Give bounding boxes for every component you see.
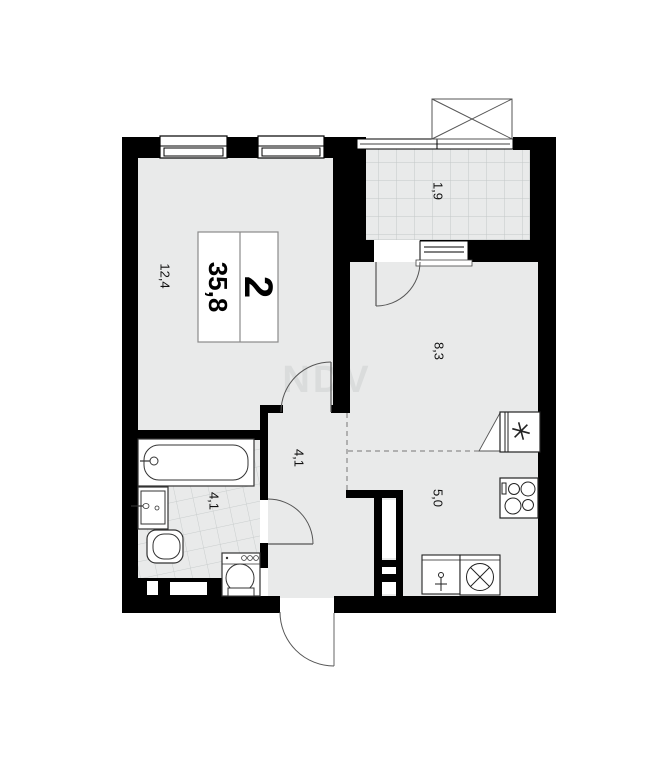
wall-bottom-left xyxy=(122,596,280,613)
balcony-outline-box xyxy=(432,99,512,139)
wall-bath-right-upper xyxy=(260,405,268,500)
summary-rooms-count: 2 xyxy=(236,276,280,298)
wall-bottom-right xyxy=(334,596,556,613)
door-swing-arc xyxy=(280,612,334,666)
shaft-rung-2 xyxy=(374,574,403,582)
shaft-cell-1 xyxy=(382,500,396,558)
shaft-cell-2 xyxy=(382,567,396,574)
wall-hall-top-right xyxy=(331,405,348,413)
balcony-railing xyxy=(357,139,513,149)
wall-right xyxy=(538,240,556,613)
duct-niche-1 xyxy=(147,581,158,595)
washing-machine xyxy=(222,553,260,596)
wall-bath-right-lower xyxy=(260,543,268,568)
room-label-kitchen-living: 8,3 xyxy=(432,342,447,360)
balcony-door-opening xyxy=(374,240,420,262)
watermark-text: NDV xyxy=(282,359,371,401)
summary-total-area: 35,8 xyxy=(203,262,233,313)
room-label-hallway: 4,1 xyxy=(292,449,307,467)
floor-plan: NDV xyxy=(0,0,658,768)
stove xyxy=(500,478,538,518)
room-label-kitchen: 5,0 xyxy=(431,489,446,507)
washing-machine-knob-icon xyxy=(226,557,228,559)
wall-balcony-notch xyxy=(513,137,531,150)
duct-niche-2 xyxy=(170,582,207,595)
bathtub xyxy=(138,439,254,486)
kitchen-sink xyxy=(460,555,500,595)
toilet xyxy=(147,530,183,563)
summary-box: 2 35,8 xyxy=(198,232,280,342)
door-entrance xyxy=(280,612,334,666)
hallway-floor xyxy=(268,405,348,598)
window-living-1 xyxy=(160,136,227,158)
shaft-top xyxy=(346,490,403,498)
window-living-2 xyxy=(258,136,324,158)
wall-balcony-right xyxy=(530,137,556,248)
shaft-cell-3 xyxy=(382,582,396,594)
room-label-balcony: 1,9 xyxy=(431,182,446,200)
shaft-rung-1 xyxy=(374,560,403,567)
floor-plan-svg: NDV xyxy=(0,0,658,768)
balcony-tiles xyxy=(365,148,530,240)
wall-balcony-left xyxy=(350,137,366,243)
wall-living-divider xyxy=(333,137,350,413)
wall-top xyxy=(122,137,364,158)
window-kitchen xyxy=(416,241,472,266)
room-label-bathroom: 4,1 xyxy=(207,492,222,510)
wall-left xyxy=(122,137,138,613)
room-label-living: 12,4 xyxy=(158,263,173,288)
kitchen-counter xyxy=(422,555,460,594)
